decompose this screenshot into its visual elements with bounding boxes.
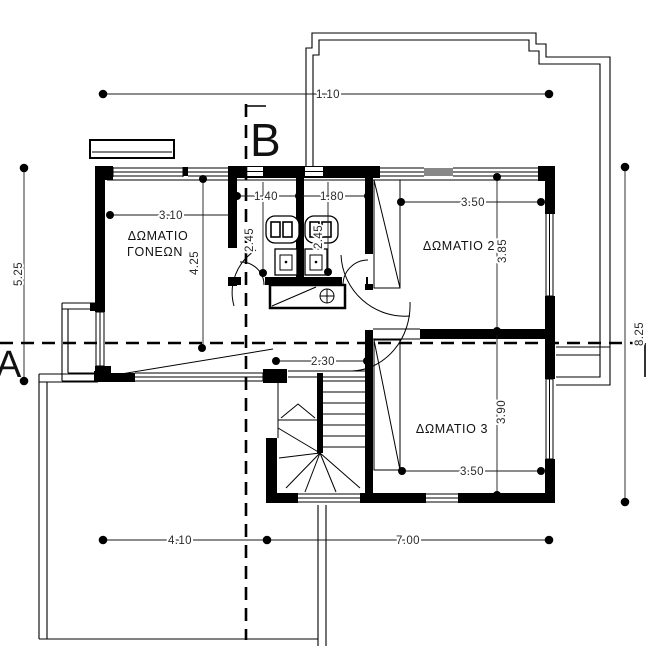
terrace-left-bottom: [39, 374, 318, 639]
wall-stair-bottom-right: [360, 493, 373, 503]
window-stair: [298, 494, 360, 502]
dim-dot: [545, 90, 554, 99]
stair-treads-right: [322, 381, 365, 447]
room-label-room3: ΔΩΜΑΤΙΟ 3: [416, 422, 488, 436]
wc-2-dot: [315, 261, 318, 264]
dim-label-bath2-w: 1.80: [320, 191, 344, 203]
floor-plan-svg: A B: [0, 0, 662, 646]
dim-label-top: 1.10: [316, 89, 340, 101]
room-label-parents-1: ΔΩΜΑΤΙΟ: [128, 229, 189, 243]
wall-room2-left: [365, 166, 373, 254]
window-room3-right: [546, 379, 553, 459]
wall-room3-bottom-left: [373, 493, 426, 503]
window-room3-bottom: [426, 494, 458, 502]
dim-label-room2-w: 3.50: [461, 197, 485, 209]
stair-stringer: [317, 373, 323, 453]
wc-1-dot: [285, 261, 288, 264]
wall-right-bottom: [545, 459, 555, 503]
window-room2-right: [546, 213, 553, 296]
window-bottom-left: [135, 373, 263, 381]
wall-room2-left-stub: [365, 284, 373, 290]
dim-dot: [364, 192, 372, 200]
dim-dot: [272, 357, 280, 365]
top-ledge-box: [90, 140, 174, 158]
window-left-wall: [96, 312, 104, 366]
window-room2-top: [380, 168, 538, 176]
dim-label-bottom-right: 7.00: [396, 535, 420, 547]
dim-dot: [493, 173, 501, 181]
wardrobe-room3-diagonal: [374, 340, 400, 470]
dim-dot: [99, 536, 108, 545]
wall-hall-bottom: [263, 369, 287, 383]
dim-label-bath1-d: 2.45: [244, 228, 256, 252]
dim-dot: [20, 377, 29, 386]
dim-dot: [397, 198, 405, 206]
wall-top-hatch-mullion: [424, 168, 453, 176]
wall-room3-left: [365, 330, 373, 503]
door-header-room3: [373, 329, 420, 339]
bathtub-1-detail-b: [283, 222, 292, 237]
dim-dot: [324, 268, 332, 276]
window-parents-top: [113, 167, 183, 177]
bathtub-1-detail-a: [271, 222, 280, 237]
roof-outline-step: [556, 347, 610, 355]
dim-dot: [99, 90, 108, 99]
dim-label-hall-w: 2.30: [311, 356, 335, 368]
dim-label-bottom-left: 4.10: [168, 535, 192, 547]
roof-outline-inner: [313, 40, 600, 377]
stair-landing-edge: [288, 371, 370, 377]
floor-plan: A B: [0, 0, 662, 646]
dim-dot: [621, 498, 630, 507]
dim-label-room3-w: 3.50: [460, 466, 484, 478]
wall-right-top: [545, 166, 555, 214]
dim-dot: [20, 164, 29, 173]
dim-dot: [398, 467, 406, 475]
dim-label-room2-d: 3.85: [497, 239, 509, 263]
dim-dot: [537, 467, 545, 475]
door-gap-bath1: [241, 276, 265, 286]
section-label-b: B: [250, 114, 281, 166]
dim-dot: [545, 536, 554, 545]
wall-room3-bottom-right: [458, 493, 555, 503]
dim-label-parents-w: 3.10: [159, 210, 183, 222]
dim-label-bath2-d: 2.45: [313, 225, 325, 249]
dim-dot: [295, 192, 303, 200]
wall-left: [95, 176, 105, 312]
section-label-a: A: [0, 344, 22, 386]
dim-dot: [263, 536, 272, 545]
wall-top-mullion: [183, 167, 188, 176]
staircase: [278, 373, 365, 492]
dim-dot: [493, 491, 501, 499]
dim-dot: [363, 357, 371, 365]
dim-label-room3-d: 3.90: [496, 400, 508, 424]
terrace-right-edge: [318, 505, 326, 646]
window-parents-top2: [188, 167, 230, 177]
top-ledge: [90, 140, 174, 158]
room-label-parents-2: ΓΟΝΕΩΝ: [127, 245, 183, 259]
room-label-room2: ΔΩΜΑΤΙΟ 2: [423, 239, 495, 253]
dim-label-right: 8.25: [634, 322, 646, 346]
terrace-outline: [39, 374, 326, 646]
dim-dot: [621, 163, 630, 172]
dim-dot: [198, 344, 206, 352]
dim-dot: [233, 192, 241, 200]
wall-right-mid: [545, 296, 555, 379]
dim-dot: [259, 269, 267, 277]
dim-dot: [537, 198, 545, 206]
dim-dot: [229, 211, 237, 219]
wardrobe-room2-diagonal: [374, 180, 400, 288]
dim-label-left: 5.25: [13, 262, 25, 286]
dim-dot: [493, 327, 501, 335]
wall-room2-room3: [420, 329, 555, 339]
wall-stair-left: [266, 438, 277, 502]
dim-dot: [106, 211, 114, 219]
wall-bath-left: [228, 166, 237, 248]
stair-arrow: [281, 404, 315, 418]
wall-stair-bottom-left: [266, 493, 298, 503]
dim-dot: [199, 175, 207, 183]
dim-label-bath1-w: 1.40: [254, 191, 278, 203]
dim-label-parents-h: 4.25: [189, 251, 201, 275]
